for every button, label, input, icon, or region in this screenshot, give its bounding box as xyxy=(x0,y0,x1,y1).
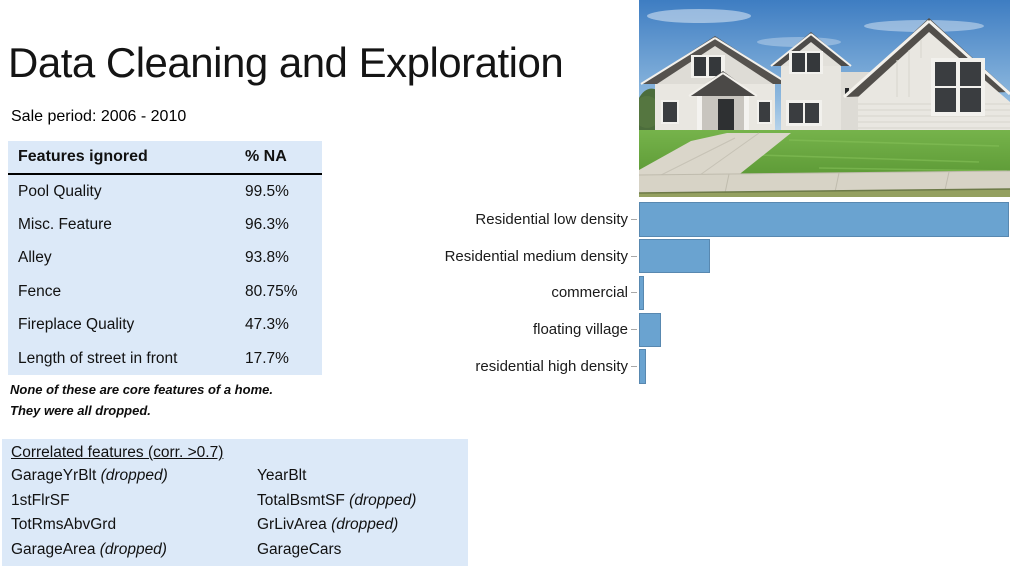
bar xyxy=(639,313,661,348)
column-header-pct-na: % NA xyxy=(245,148,322,166)
chart-row: commercial xyxy=(0,275,1012,312)
correlated-feature-right: GrLivArea (dropped) xyxy=(257,513,468,538)
correlated-pair-row: TotRmsAbvGrdGrLivArea (dropped) xyxy=(11,513,468,538)
zoning-chart: Residential low densityResidential mediu… xyxy=(0,201,1012,385)
dropped-flag: (dropped) xyxy=(327,516,399,533)
axis-tick xyxy=(631,329,637,330)
correlated-feature-right: TotalBsmtSF (dropped) xyxy=(257,489,468,514)
correlated-pair-row: 1stFlrSFTotalBsmtSF (dropped) xyxy=(11,489,468,514)
presentation-slide: Data Cleaning and Exploration Sale perio… xyxy=(0,0,1024,568)
chart-row: residential high density xyxy=(0,348,1012,385)
bar xyxy=(639,349,646,384)
chart-row: floating village xyxy=(0,311,1012,348)
correlated-feature-left: GarageArea (dropped) xyxy=(11,538,257,563)
table-header-row: Features ignored % NA xyxy=(8,141,322,175)
correlated-feature-right: YearBlt xyxy=(257,464,468,489)
correlated-pair-row: GarageArea (dropped)GarageCars xyxy=(11,538,468,563)
correlated-feature-left: GarageYrBlt (dropped) xyxy=(11,464,257,489)
axis-tick xyxy=(631,292,637,293)
correlated-heading: Correlated features (corr. >0.7) xyxy=(11,442,468,464)
bar xyxy=(639,202,1009,237)
category-label: Residential low density xyxy=(0,211,628,228)
category-label: residential high density xyxy=(0,358,628,375)
axis-tick xyxy=(631,366,637,367)
category-label: Residential medium density xyxy=(0,248,628,265)
correlated-feature-right: GarageCars xyxy=(257,538,468,563)
feature-name: Pool Quality xyxy=(18,183,245,201)
house-photo xyxy=(639,0,1010,197)
bar xyxy=(639,239,710,274)
chart-row: Residential medium density xyxy=(0,238,1012,275)
table-footnote: None of these are core features of a hom… xyxy=(10,380,273,422)
page-title: Data Cleaning and Exploration xyxy=(8,40,563,86)
correlated-list: GarageYrBlt (dropped)YearBlt1stFlrSFTota… xyxy=(11,464,468,562)
dropped-flag: (dropped) xyxy=(96,467,168,484)
correlated-pair-row: GarageYrBlt (dropped)YearBlt xyxy=(11,464,468,489)
category-label: commercial xyxy=(0,284,628,301)
feature-na-percent: 99.5% xyxy=(245,183,322,201)
correlated-feature-left: 1stFlrSF xyxy=(11,489,257,514)
axis-tick xyxy=(631,256,637,257)
correlated-feature-left: TotRmsAbvGrd xyxy=(11,513,257,538)
bar xyxy=(639,276,644,311)
correlated-features-box: Correlated features (corr. >0.7) GarageY… xyxy=(2,439,468,566)
sale-period-label: Sale period: 2006 - 2010 xyxy=(11,108,186,126)
chart-row: Residential low density xyxy=(0,201,1012,238)
column-header-features: Features ignored xyxy=(18,148,245,166)
dropped-flag: (dropped) xyxy=(95,541,167,558)
category-label: floating village xyxy=(0,321,628,338)
dropped-flag: (dropped) xyxy=(345,492,417,509)
house-photo-illustration xyxy=(639,0,1010,197)
axis-tick xyxy=(631,219,637,220)
footnote-line-2: They were all dropped. xyxy=(10,401,273,422)
